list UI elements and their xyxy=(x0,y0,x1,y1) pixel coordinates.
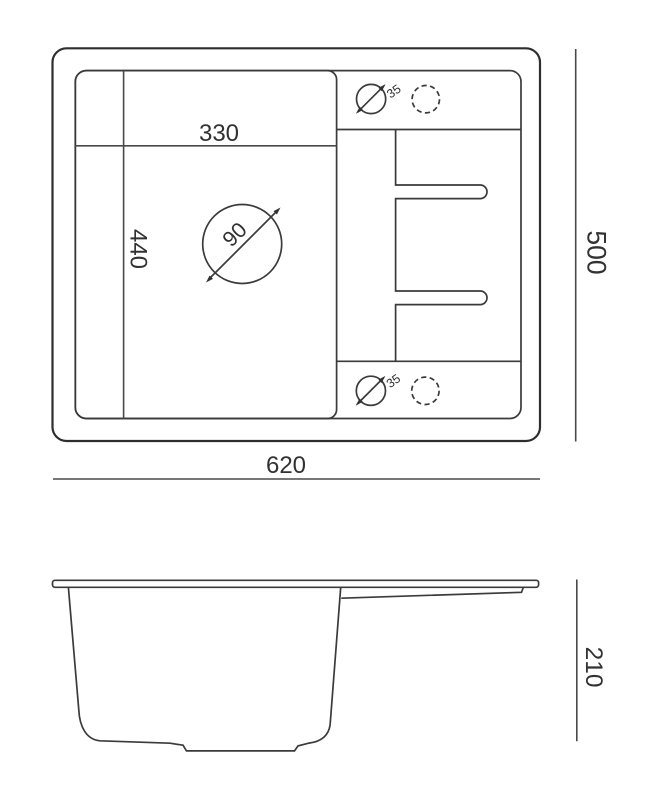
svg-text:330: 330 xyxy=(199,120,239,147)
svg-text:620: 620 xyxy=(266,452,306,479)
svg-text:35: 35 xyxy=(384,371,403,390)
svg-text:500: 500 xyxy=(582,230,612,274)
svg-text:440: 440 xyxy=(125,229,152,269)
svg-text:210: 210 xyxy=(580,647,607,688)
svg-text:90: 90 xyxy=(218,218,252,252)
svg-text:35: 35 xyxy=(384,82,403,101)
